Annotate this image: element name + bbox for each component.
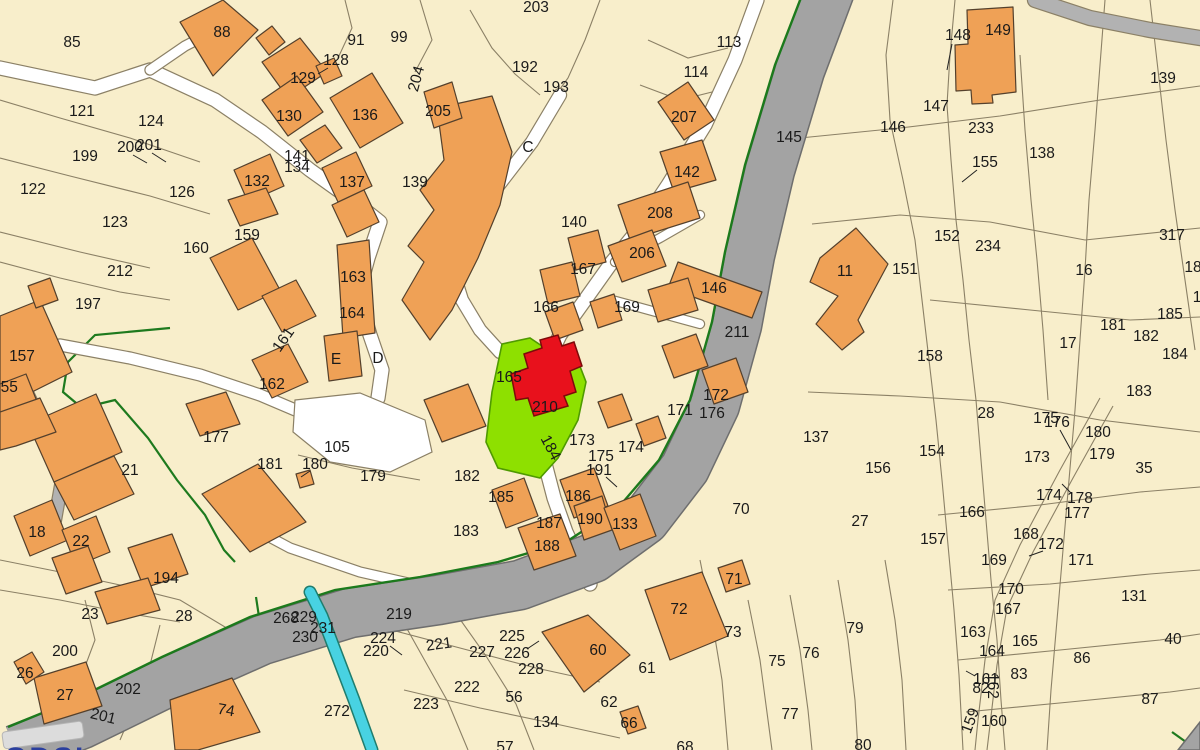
parcel-label-66: 66 [620,715,637,732]
parcel-label-1: 1 [1193,289,1200,306]
parcel-label-186: 186 [565,488,591,505]
parcel-label-191: 191 [586,462,612,479]
parcel-label-172: 172 [1038,536,1064,553]
parcel-label-180: 180 [1085,424,1111,441]
parcel-label-18: 18 [28,524,45,541]
parcel-label-193: 193 [543,79,569,96]
parcel-label-179: 179 [1089,446,1115,463]
parcel-label-208: 208 [647,205,673,222]
parcel-label-77: 77 [781,706,798,723]
parcel-label-157: 157 [9,348,35,365]
parcel-label-130: 130 [276,108,302,125]
parcel-label-165: 165 [496,369,522,386]
parcel-label-155: 155 [0,379,18,396]
parcel-label-169: 169 [614,299,640,316]
parcel-label-80: 80 [854,737,872,750]
parcel-label-86: 86 [1073,650,1090,667]
parcel-label-129: 129 [290,70,316,87]
parcel-label-194: 194 [153,570,179,587]
parcel-label-176: 176 [1044,414,1070,431]
parcel-label-61: 61 [638,660,655,677]
parcel-label-182: 182 [454,468,480,485]
parcel-label-187: 187 [536,515,562,532]
parcel-label-70: 70 [732,501,750,518]
parcel-label-85: 85 [63,34,80,51]
parcel-label-174: 174 [1036,487,1062,504]
parcel-label-71: 71 [725,571,742,588]
parcel-label-234: 234 [975,238,1001,255]
parcel-label-40: 40 [1164,631,1182,648]
parcel-label-136: 136 [352,107,378,124]
parcel-label-72: 72 [670,601,687,618]
parcel-label-158: 158 [917,348,943,365]
parcel-label-190: 190 [577,511,603,528]
parcel-label-166: 166 [959,504,985,521]
cadastral-map-canvas[interactable]: 8588919912812920319219320420513613014113… [0,0,1200,750]
parcel-label-227: 227 [469,644,495,661]
building [324,331,362,381]
parcel-label-171: 171 [1068,552,1094,569]
parcel-label-221: 221 [425,634,453,654]
parcel-label-177: 177 [1064,505,1090,522]
parcel-label-211: 211 [725,324,750,341]
parcel-label-132: 132 [244,173,270,190]
parcel-label-57: 57 [496,739,513,750]
parcel-label-113: 113 [717,34,742,51]
parcel-label-199: 199 [72,148,98,165]
parcel-label-170: 170 [998,581,1024,598]
parcel-label-167: 167 [570,261,596,278]
parcel-label-E: E [331,351,341,368]
parcel-label-122: 122 [20,181,46,198]
parcel-label-171: 171 [667,402,693,419]
parcel-label-223: 223 [413,696,439,713]
parcel-label-123: 123 [102,214,128,231]
parcel-label-26: 26 [16,665,33,682]
parcel-label-219: 219 [386,606,412,623]
parcel-label-137: 137 [339,174,365,191]
parcel-label-23: 23 [81,606,98,623]
parcel-label-91: 91 [347,32,364,49]
parcel-label-27: 27 [56,687,73,704]
parcel-label-22: 22 [72,533,89,550]
parcel-label-126: 126 [169,184,195,201]
parcel-label-162: 162 [984,673,1001,699]
parcel-label-62: 62 [600,694,617,711]
parcel-label-222: 222 [454,679,480,696]
parcel-label-99: 99 [390,29,407,46]
parcel-label-197: 197 [75,296,101,313]
parcel-label-139: 139 [402,174,428,191]
parcel-label-160: 160 [183,240,209,257]
parcel-label-73: 73 [724,624,741,641]
parcel-label-87: 87 [1141,691,1158,708]
parcel-label-188: 188 [534,538,560,555]
parcel-label-11: 11 [837,263,853,280]
parcel-label-160: 160 [981,713,1007,730]
parcel-label-138: 138 [1029,145,1055,162]
parcel-label-163: 163 [960,624,986,641]
parcel-label-164: 164 [979,643,1005,660]
parcel-label-173: 173 [1024,449,1050,466]
parcel-label-159: 159 [234,227,260,244]
parcel-label-164: 164 [339,305,365,322]
parcel-label-177: 177 [203,429,229,446]
parcel-label-124: 124 [138,113,164,130]
parcel-label-225: 225 [499,628,525,645]
parcel-label-156: 156 [865,460,891,477]
parcel-label-128: 128 [323,52,349,69]
parcel-label-142: 142 [674,164,700,181]
parcel-label-220: 220 [363,643,389,660]
parcel-label-228: 228 [518,661,544,678]
parcel-label-27: 27 [851,513,868,530]
parcel-label-17: 17 [1059,335,1076,352]
parcel-label-230: 230 [292,629,318,646]
parcel-label-133: 133 [612,516,638,533]
parcel-label-183: 183 [453,523,479,540]
building [337,240,375,338]
parcel-label-157: 157 [920,531,946,548]
parcel-label-88: 88 [213,24,230,41]
parcel-label-210: 210 [532,399,558,416]
parcel-label-137: 137 [803,429,829,446]
parcel-label-200: 200 [52,643,78,660]
parcel-label-18: 18 [1184,259,1200,276]
parcel-label-147: 147 [923,98,949,115]
cadastral-map-viewport[interactable]: 8588919912812920319219320420513613014113… [0,0,1200,750]
parcel-label-146: 146 [880,119,906,136]
parcel-label-60: 60 [589,642,607,659]
parcel-label-105: 105 [324,439,350,456]
parcel-label-139: 139 [1150,70,1176,87]
parcel-label-182: 182 [1133,328,1159,345]
parcel-label-D: D [372,350,383,367]
parcel-label-206: 206 [629,245,655,262]
parcel-label-174: 174 [618,439,644,456]
parcel-label-76: 76 [802,645,819,662]
parcel-label-203: 203 [523,0,549,16]
parcel-label-152: 152 [934,228,960,245]
parcel-label-134: 134 [533,714,559,731]
parcel-label-181: 181 [257,456,283,473]
parcel-label-21: 21 [121,462,138,479]
parcel-label-145: 145 [776,129,802,146]
parcel-label-169: 169 [981,552,1007,569]
parcel-label-56: 56 [505,689,522,706]
parcel-label-181: 181 [1100,317,1126,334]
parcel-label-162: 162 [259,376,285,393]
parcel-label-226: 226 [504,645,530,662]
parcel-label-233: 233 [968,120,994,137]
parcel-label-168: 168 [1013,526,1039,543]
parcel-label-149: 149 [985,22,1011,39]
parcel-label-148: 148 [945,27,971,44]
parcel-label-74: 74 [216,701,236,721]
parcel-label-205: 205 [425,103,451,120]
parcel-label-121: 121 [69,103,95,120]
parcel-label-185: 185 [488,489,514,506]
parcel-label-201: 201 [136,137,162,154]
parcel-label-154: 154 [919,443,945,460]
parcel-label-16: 16 [1075,262,1092,279]
watermark-logo: GDSI [4,742,85,750]
parcel-label-183: 183 [1126,383,1152,400]
parcel-label-172: 172 [703,387,729,404]
parcel-label-151: 151 [892,261,918,278]
parcel-label-114: 114 [684,64,709,81]
parcel-label-184: 184 [1162,346,1188,363]
parcel-label-185: 185 [1157,306,1183,323]
parcel-label-212: 212 [107,263,133,280]
parcel-label-75: 75 [768,653,785,670]
parcel-label-317: 317 [1159,227,1185,244]
parcel-label-79: 79 [846,620,863,637]
parcel-label-192: 192 [512,59,538,76]
parcel-label-C: C [522,139,533,156]
parcel-label-28: 28 [175,608,192,625]
parcel-label-207: 207 [671,109,697,126]
parcel-label-146: 146 [701,280,727,297]
parcel-label-163: 163 [340,269,366,286]
parcel-label-140: 140 [561,214,587,231]
parcel-label-68: 68 [676,739,693,750]
parcel-label-167: 167 [995,601,1021,618]
parcel-label-176: 176 [699,405,725,422]
parcel-label-272: 272 [324,703,350,720]
parcel-label-173: 173 [569,432,595,449]
parcel-label-166: 166 [533,299,559,316]
parcel-label-28: 28 [977,405,994,422]
parcel-label-131: 131 [1121,588,1147,605]
parcel-label-155: 155 [972,154,998,171]
parcel-label-134: 134 [284,159,310,176]
parcel-label-179: 179 [360,468,386,485]
parcel-label-202: 202 [115,681,141,698]
parcel-label-35: 35 [1135,460,1152,477]
parcel-label-165: 165 [1012,633,1038,650]
parcel-label-180: 180 [302,456,328,473]
parcel-label-83: 83 [1010,666,1027,683]
